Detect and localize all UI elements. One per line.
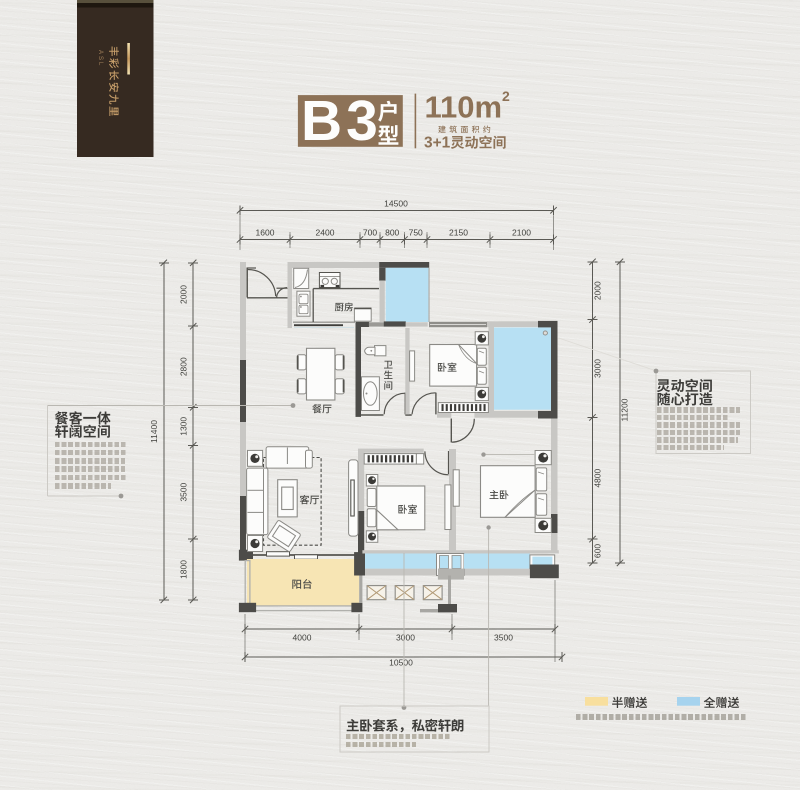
svg-text:2: 2 bbox=[502, 88, 510, 104]
svg-text:14500: 14500 bbox=[384, 199, 408, 209]
svg-text:3500: 3500 bbox=[179, 482, 189, 501]
svg-text:1600: 1600 bbox=[256, 228, 275, 238]
svg-text:3000: 3000 bbox=[396, 633, 415, 643]
svg-text:750: 750 bbox=[409, 228, 423, 238]
svg-text:3000: 3000 bbox=[593, 359, 603, 378]
svg-text:10500: 10500 bbox=[389, 658, 413, 668]
svg-text:2100: 2100 bbox=[512, 228, 531, 238]
svg-text:B3: B3 bbox=[301, 89, 382, 153]
svg-text:2400: 2400 bbox=[316, 228, 335, 238]
svg-text:700: 700 bbox=[363, 228, 377, 238]
svg-text:1300: 1300 bbox=[179, 417, 189, 436]
svg-text:800: 800 bbox=[385, 228, 399, 238]
svg-text:11400: 11400 bbox=[149, 420, 159, 443]
svg-text:2150: 2150 bbox=[449, 228, 468, 238]
svg-text:4000: 4000 bbox=[293, 633, 312, 643]
svg-text:3+1: 3+1 bbox=[424, 135, 451, 152]
svg-text:2000: 2000 bbox=[179, 285, 189, 304]
svg-text:2800: 2800 bbox=[179, 357, 189, 376]
svg-text:1800: 1800 bbox=[179, 560, 189, 579]
svg-text:110m: 110m bbox=[425, 90, 503, 125]
svg-text:11200: 11200 bbox=[620, 398, 630, 421]
svg-text:2000: 2000 bbox=[593, 281, 603, 300]
svg-text:ASL: ASL bbox=[97, 50, 103, 67]
svg-text:3500: 3500 bbox=[494, 633, 513, 643]
svg-text:4800: 4800 bbox=[593, 468, 603, 487]
svg-text:600: 600 bbox=[593, 544, 603, 558]
